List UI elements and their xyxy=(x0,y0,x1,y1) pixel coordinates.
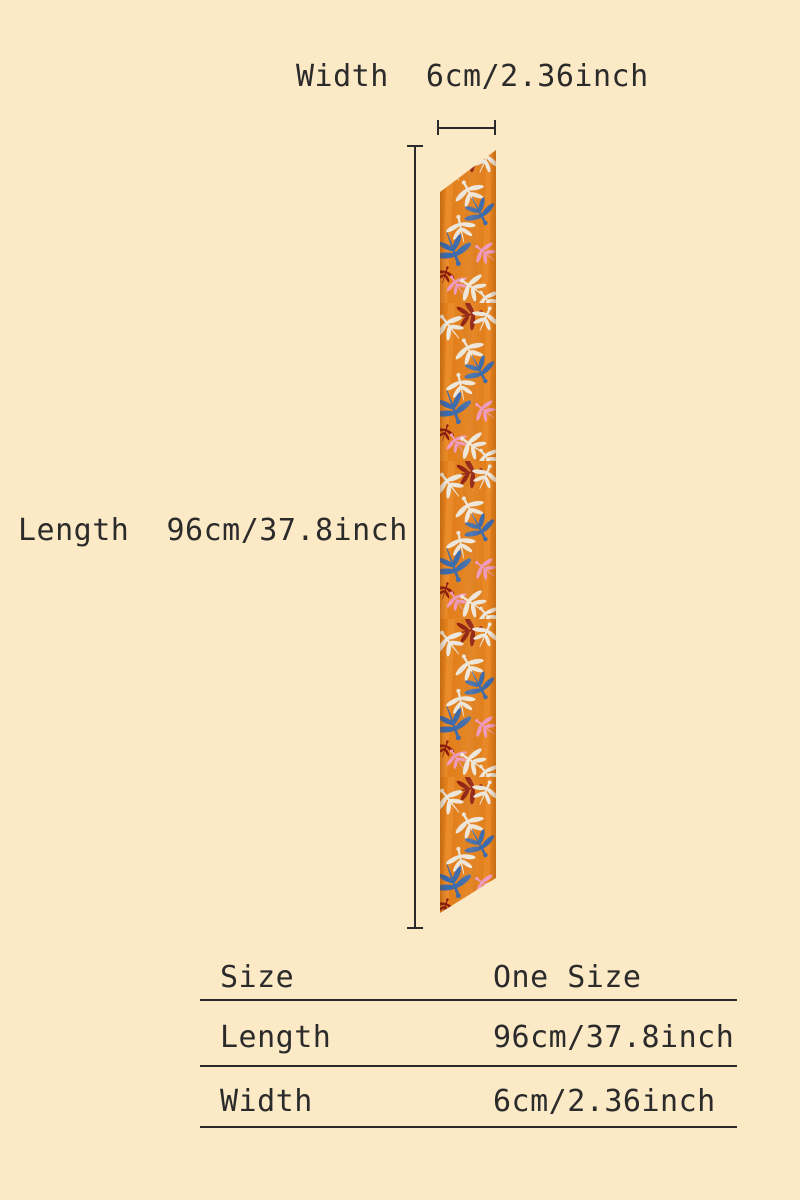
size-chart-page: { "page": { "background_color": "#FCEAC6… xyxy=(0,0,800,1200)
length-measure-bottom-cap xyxy=(407,927,423,929)
size-table-width-label: Width xyxy=(220,1086,313,1118)
width-bracket-left-tick xyxy=(437,120,439,135)
width-bracket-right-tick xyxy=(494,120,496,135)
length-measure-line xyxy=(414,146,416,928)
width-bracket-line xyxy=(437,127,496,129)
table-divider-3 xyxy=(200,1126,737,1128)
length-measure-top-cap xyxy=(407,145,423,147)
size-table-width-value: 6cm/2.36inch xyxy=(493,1086,716,1118)
table-divider-1 xyxy=(200,999,737,1001)
size-table-length-label: Length xyxy=(220,1022,331,1054)
scarf-illustration xyxy=(435,145,501,920)
scarf-sheen-overlay xyxy=(440,150,496,913)
table-divider-2 xyxy=(200,1065,737,1067)
length-measure-label: Length 96cm/37.8inch xyxy=(18,514,408,548)
size-table-header-label: Size xyxy=(220,962,294,994)
width-measure-label: Width 6cm/2.36inch xyxy=(296,60,649,94)
size-table-header-value: One Size xyxy=(493,962,642,994)
size-table-length-value: 96cm/37.8inch xyxy=(493,1022,734,1054)
